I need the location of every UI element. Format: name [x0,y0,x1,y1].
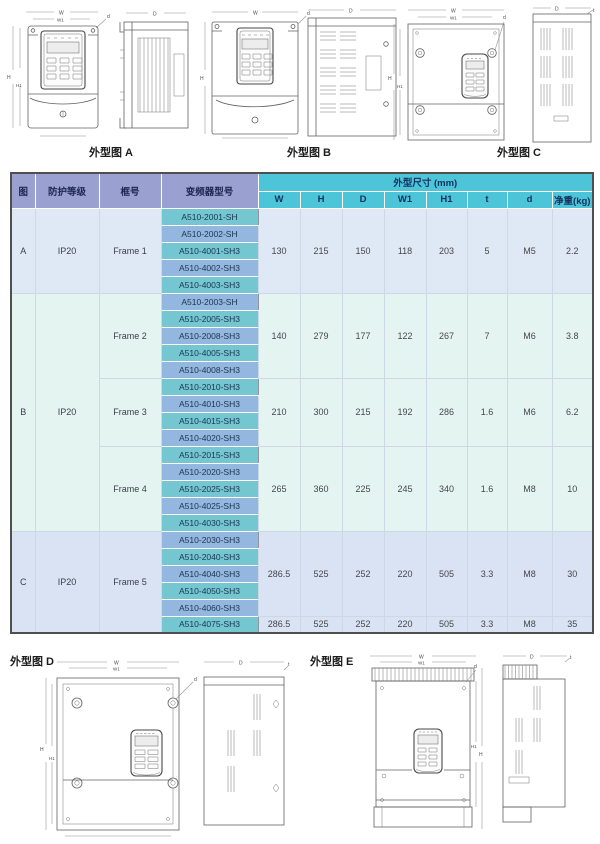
dim-label-d: d [503,15,506,21]
dim-cell-t: 1.6 [467,446,507,531]
model-cell: A510-2025-SH3 [161,480,258,497]
model-cell: A510-4010-SH3 [161,395,258,412]
dimension-spec-table: 图 防护等级 框号 变频器型号 外型尺寸 (mm) W H D W1 H1 t … [10,172,594,634]
model-cell: A510-4025-SH3 [161,497,258,514]
dim-cell-weight: 6.2 [552,378,593,446]
dim-label-t: t [570,655,572,661]
model-cell: A510-4008-SH3 [161,361,258,378]
model-cell: A510-4040-SH3 [161,565,258,582]
drawing-c-side: D t [533,7,595,143]
vent-slots [516,686,540,774]
dim-label-d: d [194,677,197,683]
dim-label-h: H [40,747,44,753]
dim-label-h1: H1 [397,84,403,89]
dim-label-h: H [200,76,204,82]
dim-cell-weight: 3.8 [552,293,593,378]
figure-label-a: 外型图 A [89,144,133,160]
dim-cell-w1: 122 [384,293,426,378]
mounting-hole [31,29,35,33]
keypad [237,28,273,84]
dim-cell-hole: M8 [507,446,552,531]
dim-label-w1: W1 [418,661,425,666]
dim-cell-d: 177 [342,293,384,378]
figure-label-e: 外型图 E [310,653,353,669]
frame-cell: Frame 2 [99,293,161,378]
dim-label-d: d [474,664,477,670]
dim-cell-weight: 2.2 [552,208,593,293]
dim-label-h1: H1 [471,744,477,749]
model-cell: A510-2002-SH [161,225,258,242]
dim-cell-t: 3.3 [467,531,507,616]
dim-label-depth: D [555,7,559,13]
dim-cell-hole: M8 [507,616,552,633]
model-cell: A510-2008-SH3 [161,327,258,344]
dim-cell-w: 140 [258,293,300,378]
dim-cell-weight: 30 [552,531,593,616]
dim-cell-weight: 35 [552,616,593,633]
vent-slots [320,32,356,112]
dim-label-h: H [7,75,11,81]
dim-cell-w1: 245 [384,446,426,531]
dim-cell-h: 525 [300,616,342,633]
dim-label-h: H [479,752,483,758]
frame-cell: Frame 1 [99,208,161,293]
outline-drawings-top: W W1 H H1 d D W H [0,0,600,168]
frame-cell: Frame 3 [99,378,161,446]
dim-label-t: t [593,8,595,14]
model-cell: A510-2020-SH3 [161,463,258,480]
dim-label-h1: H1 [49,756,55,761]
drawing-e-front: W W1 d H H1 [370,655,483,830]
model-cell: A510-4060-SH3 [161,599,258,616]
dim-cell-w: 130 [258,208,300,293]
col-header-h1: H1 [426,191,467,208]
col-header-t: t [467,191,507,208]
dim-cell-hole: M6 [507,293,552,378]
heatsink-fins [372,668,474,681]
dim-label-depth: D [530,655,534,661]
dim-label-w1: W1 [57,18,64,23]
model-cell: A510-4030-SH3 [161,514,258,531]
dim-cell-h: 525 [300,531,342,616]
figure-label-d: 外型图 D [10,653,54,669]
dim-cell-h1: 505 [426,616,467,633]
model-cell: A510-4003-SH3 [161,276,258,293]
figure-cell: C [11,531,35,633]
mounting-hole [215,25,219,29]
model-cell: A510-4075-SH3 [161,616,258,633]
table-row: C IP20 Frame 5 A510-2030-SH3 286.5 525 2… [11,531,593,548]
dim-cell-d: 150 [342,208,384,293]
keypad [131,730,162,776]
outline-drawings-bottom: W W1 H H1 d D t W [0,648,600,844]
model-cell: A510-2015-SH3 [161,446,258,463]
dim-cell-d: 252 [342,616,384,633]
model-cell: A510-4002-SH3 [161,259,258,276]
drawing-d-side: D t [204,661,290,826]
figure-cell: A [11,208,35,293]
dim-label-t: t [288,662,290,668]
dim-cell-t: 1.6 [467,378,507,446]
col-header-model: 变频器型号 [161,173,258,208]
dim-cell-t: 7 [467,293,507,378]
model-cell: A510-4005-SH3 [161,344,258,361]
vent-slots [541,28,572,106]
col-header-figure: 图 [11,173,35,208]
dim-cell-hole: M6 [507,378,552,446]
dim-label-depth: D [153,12,157,18]
dim-cell-w1: 220 [384,616,426,633]
col-header-dimensions-group: 外型尺寸 (mm) [258,173,593,191]
dim-cell-h1: 267 [426,293,467,378]
model-cell: A510-4001-SH3 [161,242,258,259]
table-row: Frame 3 A510-2010-SH3 210 300 215 192 28… [11,378,593,395]
model-cell: A510-4020-SH3 [161,429,258,446]
dim-label-w: W [59,11,64,17]
col-header-w: W [258,191,300,208]
table-row: Frame 4 A510-2015-SH3 265 360 225 245 34… [11,446,593,463]
dim-cell-h1: 340 [426,446,467,531]
mounting-hole [291,25,295,29]
dim-cell-t: 3.3 [467,616,507,633]
drawing-a-side: D [120,12,188,129]
dim-cell-w: 286.5 [258,616,300,633]
frame-cell: Frame 4 [99,446,161,531]
dim-cell-h1: 505 [426,531,467,616]
dim-label-d: d [107,14,110,20]
dim-cell-h: 215 [300,208,342,293]
figure-label-c: 外型图 C [497,144,541,160]
protection-cell: IP20 [35,208,99,293]
heatsink-fins [503,665,537,679]
keypad [41,31,85,89]
model-cell: A510-2005-SH3 [161,310,258,327]
keypad [414,729,442,773]
dim-cell-h1: 203 [426,208,467,293]
figure-label-b: 外型图 B [287,144,331,160]
dim-label-d: d [307,11,310,17]
protection-cell: IP20 [35,531,99,633]
keypad [462,54,488,98]
dim-cell-h1: 286 [426,378,467,446]
dim-label-h1: H1 [16,83,22,88]
model-cell: A510-2030-SH3 [161,531,258,548]
model-cell: A510-4050-SH3 [161,582,258,599]
col-header-h: H [300,191,342,208]
dim-cell-h: 300 [300,378,342,446]
col-header-w1: W1 [384,191,426,208]
dim-label-w1: W1 [113,667,120,672]
model-cell: A510-4015-SH3 [161,412,258,429]
dim-cell-h: 360 [300,446,342,531]
dim-cell-weight: 10 [552,446,593,531]
dim-label-w: W [451,9,456,15]
dim-cell-w1: 192 [384,378,426,446]
dim-cell-w: 286.5 [258,531,300,616]
drawing-d-front: W W1 H H1 d [40,661,197,837]
dim-cell-d: 215 [342,378,384,446]
drawing-e-side: D t [503,655,572,823]
dim-cell-hole: M5 [507,208,552,293]
col-header-d: D [342,191,384,208]
dim-cell-d: 225 [342,446,384,531]
dim-cell-h: 279 [300,293,342,378]
terminal-box [374,807,472,827]
model-cell: A510-2040-SH3 [161,548,258,565]
col-header-weight: 净重(kg) [552,191,593,208]
protection-cell: IP20 [35,293,99,531]
dim-cell-w1: 220 [384,531,426,616]
col-header-protection: 防护等级 [35,173,99,208]
drawing-b-front: W H d [200,11,310,139]
dim-cell-hole: M8 [507,531,552,616]
model-cell: A510-2010-SH3 [161,378,258,395]
dim-cell-d: 252 [342,531,384,616]
vent-slots [228,694,260,792]
dim-label-depth: D [349,9,353,15]
dim-label-depth: D [239,661,243,667]
dim-cell-w1: 118 [384,208,426,293]
dim-label-w: W [253,11,258,17]
figure-cell: B [11,293,35,531]
table-row: B IP20 Frame 2 A510-2003-SH 140 279 177 … [11,293,593,310]
col-header-frame: 框号 [99,173,161,208]
table-row: A IP20 Frame 1 A510-2001-SH 130 215 150 … [11,208,593,225]
frame-cell: Frame 5 [99,531,161,633]
dim-cell-t: 5 [467,208,507,293]
drawing-c-front: W W1 H H1 d [388,9,506,141]
drawing-b-side: D [308,9,396,137]
dim-cell-w: 210 [258,378,300,446]
col-header-hole-d: d [507,191,552,208]
model-cell: A510-2001-SH [161,208,258,225]
dim-cell-w: 265 [258,446,300,531]
drawing-a-front: W W1 H H1 d [7,11,110,137]
mounting-hole [91,29,95,33]
model-cell: A510-2003-SH [161,293,258,310]
dim-label-w1: W1 [450,16,457,21]
dim-label-h: H [388,76,392,82]
